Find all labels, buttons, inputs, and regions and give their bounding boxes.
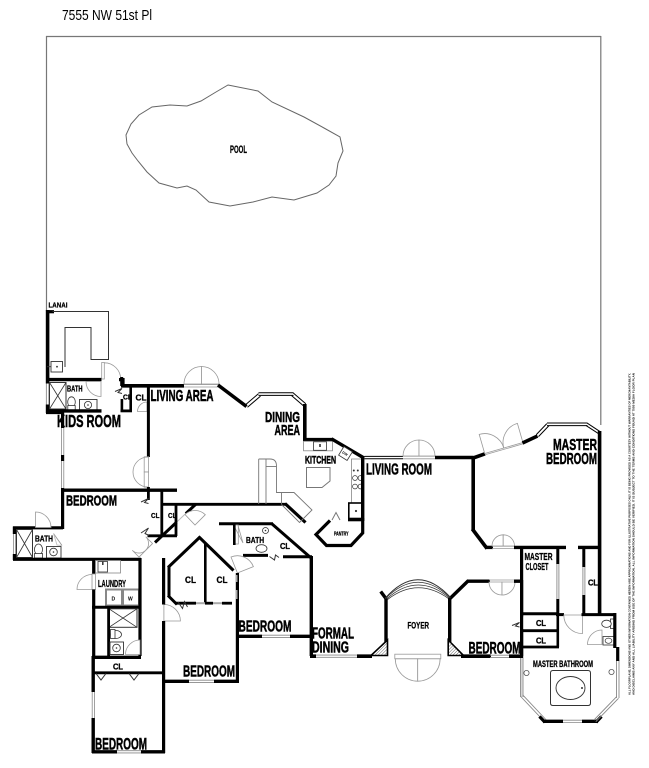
svg-text:POOL: POOL: [230, 144, 247, 156]
svg-text:BEDROOM: BEDROOM: [183, 664, 235, 681]
svg-text:BATH: BATH: [35, 535, 53, 544]
svg-text:LIVING ROOM: LIVING ROOM: [366, 462, 432, 479]
svg-text:CL: CL: [217, 575, 229, 585]
svg-text:DINING: DINING: [312, 640, 349, 657]
svg-text:7555 NW 51st Pl: 7555 NW 51st Pl: [62, 7, 152, 24]
svg-text:BATH: BATH: [67, 385, 83, 394]
svg-text:CL: CL: [113, 663, 123, 672]
svg-text:BEDROOM: BEDROOM: [66, 494, 117, 510]
svg-text:CL: CL: [168, 511, 177, 520]
svg-text:LANAI: LANAI: [49, 301, 68, 310]
svg-text:CL: CL: [136, 393, 147, 403]
svg-text:BEDROOM: BEDROOM: [546, 451, 597, 468]
svg-text:W: W: [128, 597, 133, 603]
svg-text:CL: CL: [280, 541, 290, 551]
svg-text:LIVING AREA: LIVING AREA: [151, 388, 214, 405]
svg-text:AND DISCLAIMS ANY AND ALL LIAB: AND DISCLAIMS ANY AND ALL LIABILITY ARIS…: [632, 373, 636, 695]
svg-text:FOYER: FOYER: [408, 621, 430, 631]
svg-text:BEDROOM: BEDROOM: [239, 619, 292, 636]
svg-text:KITCHEN: KITCHEN: [305, 455, 336, 467]
svg-text:CL: CL: [151, 511, 160, 520]
svg-text:CL: CL: [185, 575, 197, 585]
svg-text:CL: CL: [123, 393, 132, 402]
svg-text:CLOSET: CLOSET: [526, 562, 549, 573]
svg-text:AREA: AREA: [275, 422, 301, 439]
svg-text:D: D: [112, 597, 116, 603]
svg-text:CL: CL: [536, 618, 546, 628]
svg-text:PANTRY: PANTRY: [334, 532, 349, 538]
svg-text:CL: CL: [536, 636, 546, 646]
svg-text:MASTER BATHROOM: MASTER BATHROOM: [533, 659, 593, 669]
svg-text:LAUNDRY: LAUNDRY: [98, 579, 126, 590]
svg-text:KIDS ROOM: KIDS ROOM: [57, 411, 121, 431]
svg-text:BATH: BATH: [246, 535, 264, 545]
svg-text:CL: CL: [588, 578, 598, 588]
